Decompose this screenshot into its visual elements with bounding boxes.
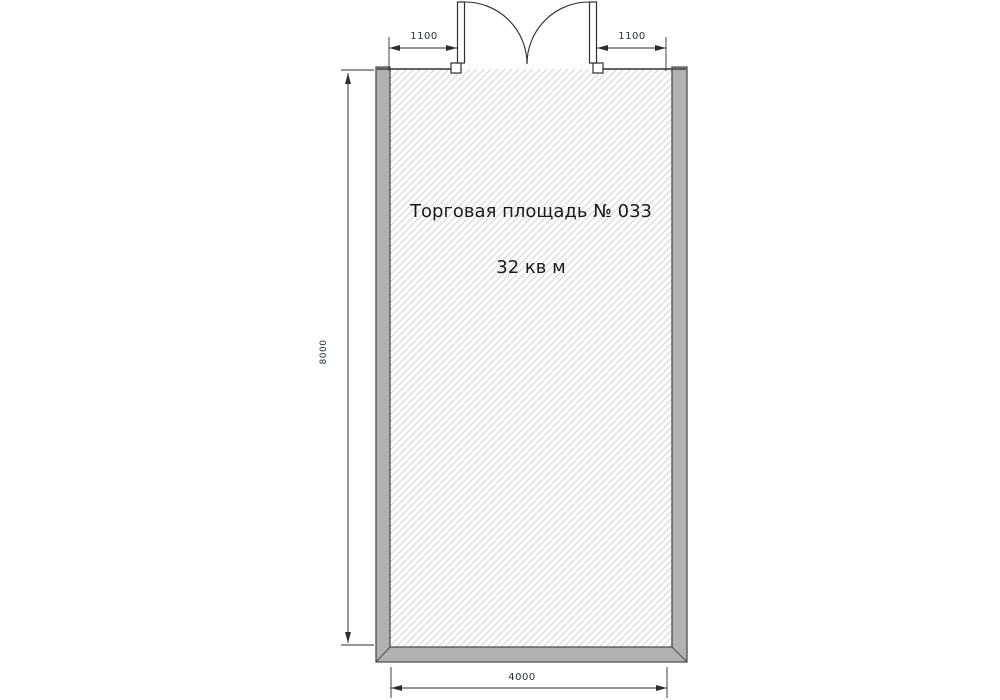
dimension-text-width: 4000 (492, 672, 552, 683)
dimension-text-door-right: 1100 (606, 31, 658, 42)
door-swing-arc-right (527, 2, 590, 64)
dimension-text-door-left: 1100 (398, 31, 450, 42)
door-leaf-left (458, 2, 465, 63)
dimension-text-depth: 8000 (319, 332, 333, 372)
room-area-label: 32 кв м (390, 257, 672, 278)
floor-plan-drawing (0, 0, 1000, 700)
door-jamb-left (451, 63, 461, 73)
door-leaf-right (590, 2, 597, 63)
room-name-label: Торговая площадь № 033 (390, 201, 672, 222)
door-jamb-right (593, 63, 603, 73)
door-swing-arc-left (464, 2, 527, 64)
floor-hatch-pattern (391, 69, 672, 647)
floor-plan-canvas: Торговая площадь № 033 32 кв м 1100 1100… (0, 0, 1000, 700)
